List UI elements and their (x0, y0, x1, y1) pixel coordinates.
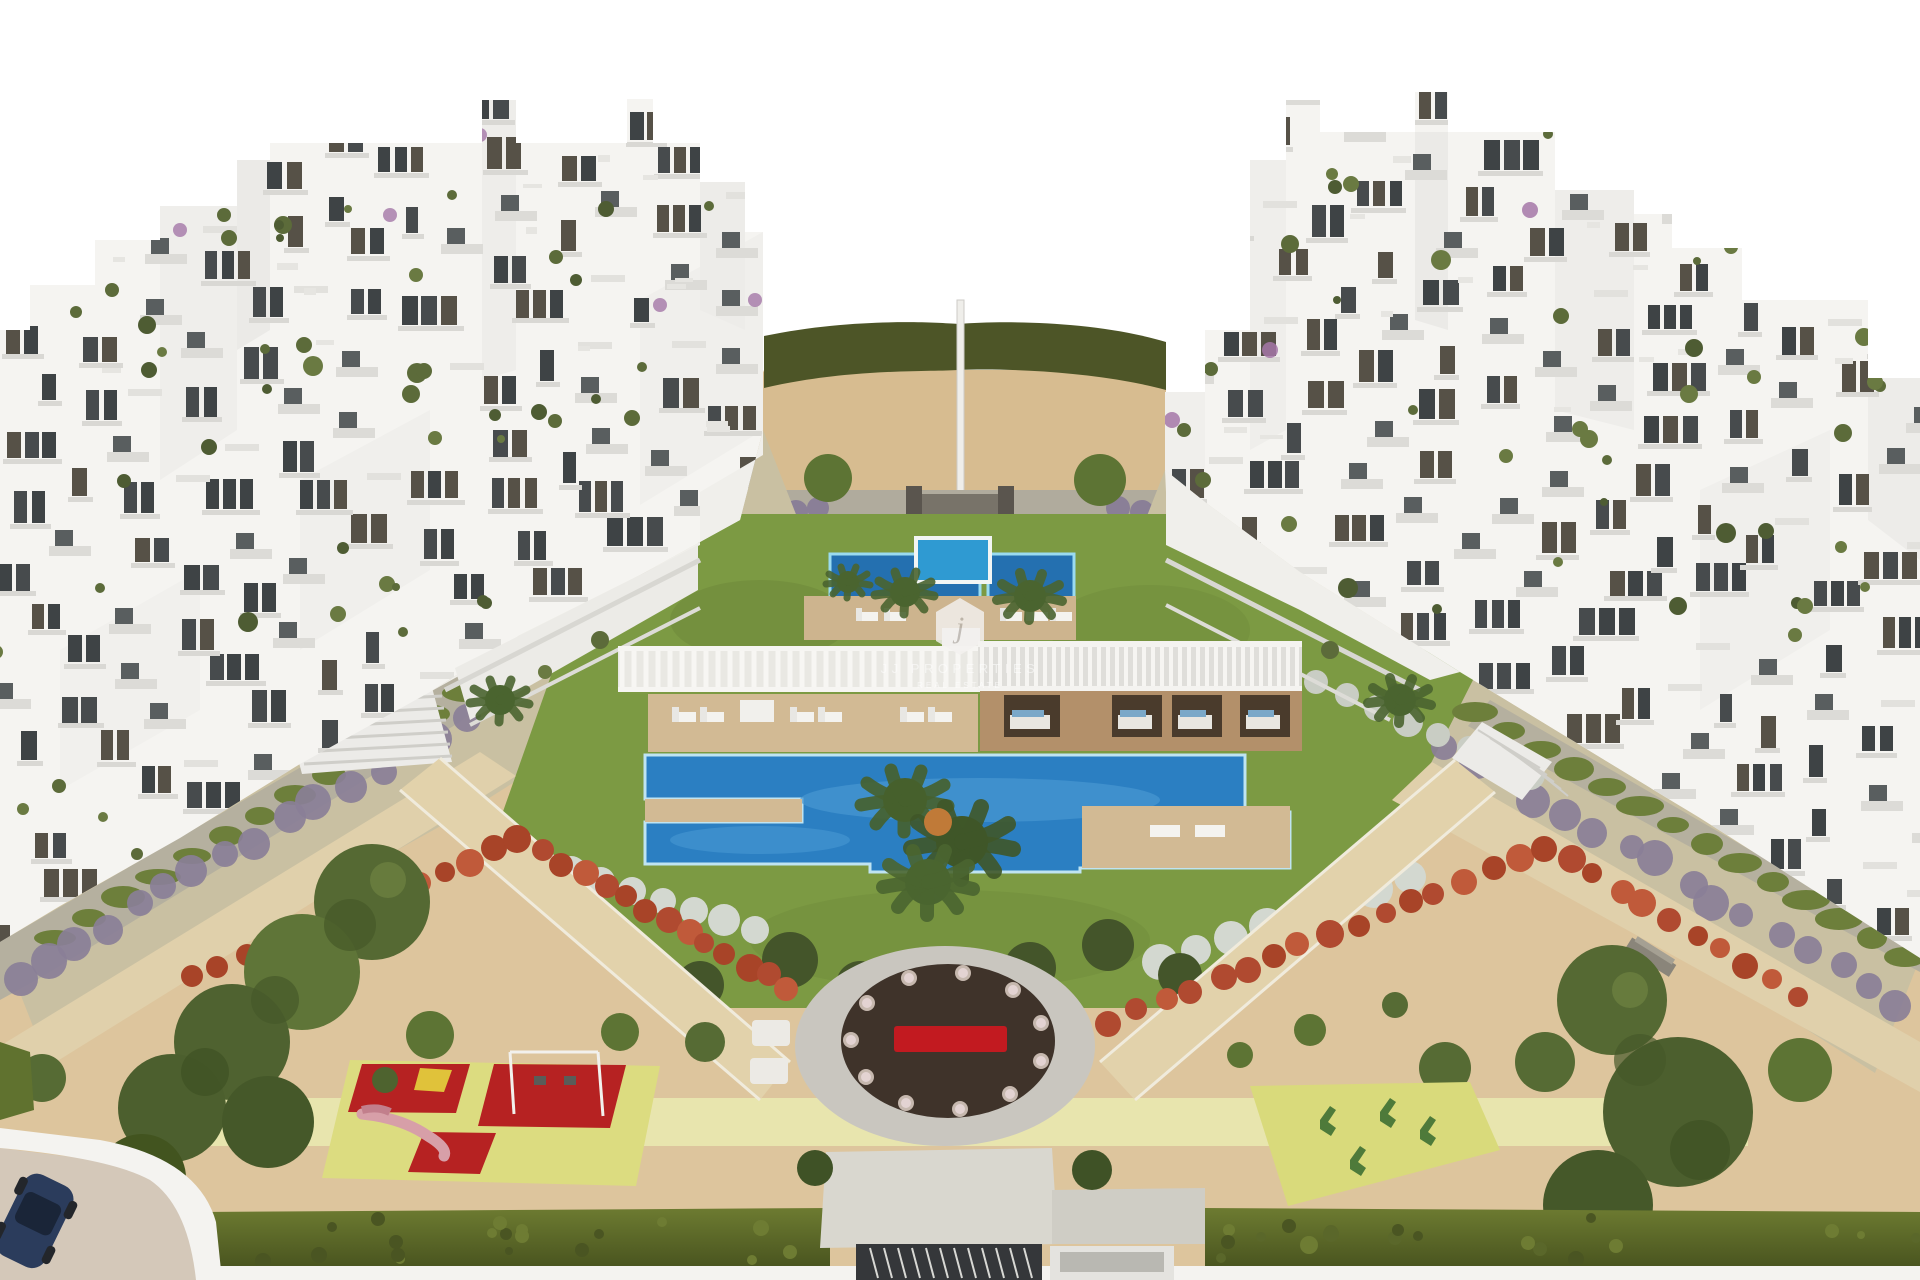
svg-text:JJ PROPERTIES: JJ PROPERTIES (881, 661, 1040, 676)
svg-text:REAL ESTATE: REAL ESTATE (917, 681, 1003, 690)
